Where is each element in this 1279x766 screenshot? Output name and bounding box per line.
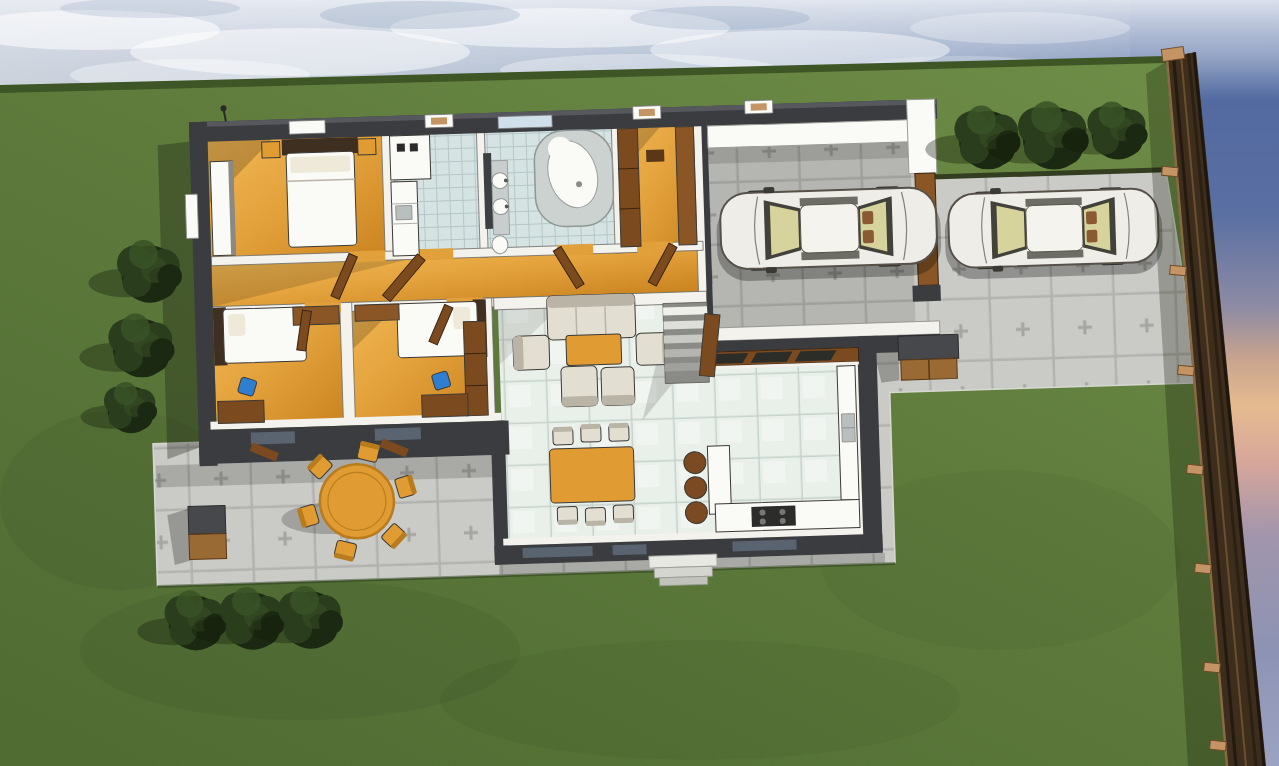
wardrobe	[617, 128, 641, 247]
bar-stool	[684, 476, 707, 499]
coffee-table	[566, 334, 622, 366]
desk	[218, 400, 265, 423]
scene-canvas	[0, 0, 1279, 766]
storage-box-patio	[188, 505, 227, 559]
bar-stool	[685, 501, 708, 524]
pillow	[228, 314, 246, 337]
wardrobe	[355, 304, 399, 321]
bed-pillows	[290, 155, 350, 173]
vanity-counter	[491, 160, 509, 234]
dining-table	[549, 447, 635, 504]
car-on-driveway	[944, 183, 1164, 280]
fridge	[389, 135, 430, 180]
bar-stool	[684, 451, 707, 474]
site-plan-render	[0, 0, 1279, 766]
storage-bin	[646, 149, 664, 162]
bathroom-clerestory	[498, 115, 552, 129]
desk	[422, 394, 469, 417]
round-table	[319, 463, 395, 539]
toilet	[492, 235, 509, 253]
storage-box-driveway	[898, 334, 959, 380]
west-window-sill	[185, 194, 198, 238]
wardrobe	[293, 306, 340, 325]
cooktop	[751, 506, 796, 527]
carport-post-base	[912, 285, 940, 302]
car-in-carport	[715, 182, 942, 282]
wardrobe	[675, 127, 697, 246]
kitchen-sink	[396, 205, 412, 219]
carport-roof-east-band	[907, 99, 937, 174]
nightstand	[358, 139, 376, 156]
nightstand	[262, 142, 280, 159]
dining-set	[549, 423, 636, 528]
